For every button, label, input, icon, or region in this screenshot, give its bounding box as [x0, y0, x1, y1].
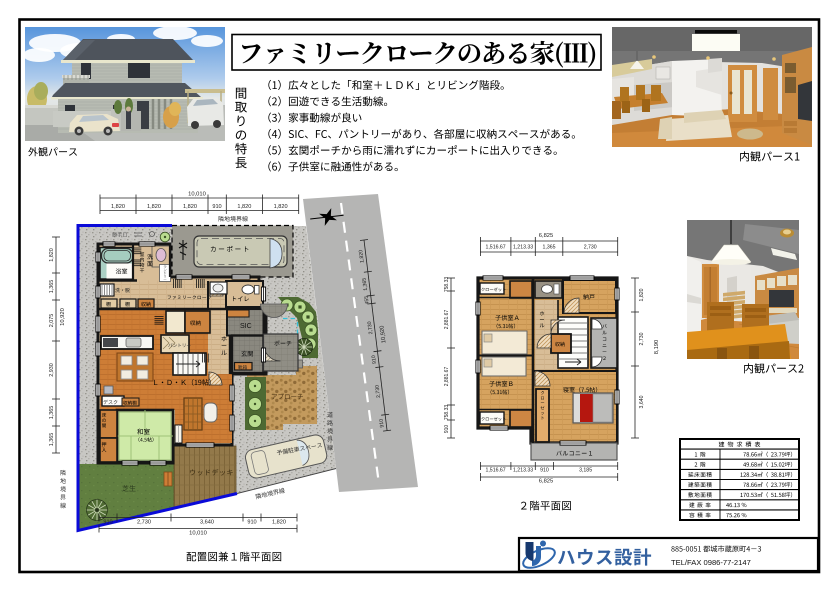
svg-text:1,820: 1,820	[237, 204, 251, 210]
svg-text:1,820: 1,820	[272, 520, 286, 526]
svg-text:758.33: 758.33	[444, 277, 450, 293]
svg-text:10,010: 10,010	[188, 192, 206, 198]
svg-text:455: 455	[364, 295, 371, 304]
svg-text:758.33: 758.33	[444, 405, 450, 421]
svg-text:2,881.67: 2,881.67	[444, 310, 450, 330]
svg-text:TEL/FAX 0986-77-2147: TEL/FAX 0986-77-2147	[671, 558, 751, 567]
svg-text:8,190: 8,190	[654, 340, 660, 355]
svg-text:1,516.67: 1,516.67	[485, 245, 505, 251]
svg-text:910: 910	[103, 520, 112, 526]
svg-text:2,730: 2,730	[639, 332, 645, 345]
svg-text:2,881.67: 2,881.67	[444, 367, 450, 387]
svg-text:1,820: 1,820	[183, 204, 197, 210]
svg-text:1,820: 1,820	[147, 204, 161, 210]
svg-text:SIC: SIC	[240, 323, 252, 330]
svg-text:1,820: 1,820	[49, 248, 55, 262]
svg-text:10,010: 10,010	[189, 531, 207, 537]
svg-text:1,213.33: 1,213.33	[513, 468, 533, 474]
svg-text:3,185: 3,185	[579, 468, 592, 474]
svg-text:910: 910	[371, 355, 378, 364]
svg-text:2,930: 2,930	[49, 363, 55, 377]
svg-text:1,365: 1,365	[49, 280, 55, 294]
svg-text:6,825: 6,825	[539, 233, 554, 239]
svg-text:1,365: 1,365	[49, 433, 55, 447]
svg-text:1,213.33: 1,213.33	[513, 245, 533, 251]
svg-text:3,640: 3,640	[200, 520, 214, 526]
svg-text:3,640: 3,640	[639, 395, 645, 408]
svg-text:1,365: 1,365	[49, 406, 55, 420]
svg-text:6,825: 6,825	[539, 479, 554, 485]
svg-text:1,820: 1,820	[639, 288, 645, 301]
svg-text:1,820: 1,820	[274, 204, 288, 210]
svg-text:1,516.67: 1,516.67	[485, 468, 505, 474]
svg-text:910: 910	[379, 418, 386, 427]
svg-text:910: 910	[444, 425, 450, 434]
svg-text:2,730: 2,730	[137, 520, 151, 526]
svg-text:2,730: 2,730	[584, 245, 597, 251]
svg-text:910: 910	[540, 468, 549, 474]
svg-text:910: 910	[247, 520, 256, 526]
svg-text:10,920: 10,920	[60, 308, 66, 326]
svg-text:2,075: 2,075	[49, 314, 55, 328]
svg-text:1,820: 1,820	[111, 204, 125, 210]
svg-text:1,365: 1,365	[543, 245, 556, 251]
svg-text:910: 910	[212, 204, 221, 210]
